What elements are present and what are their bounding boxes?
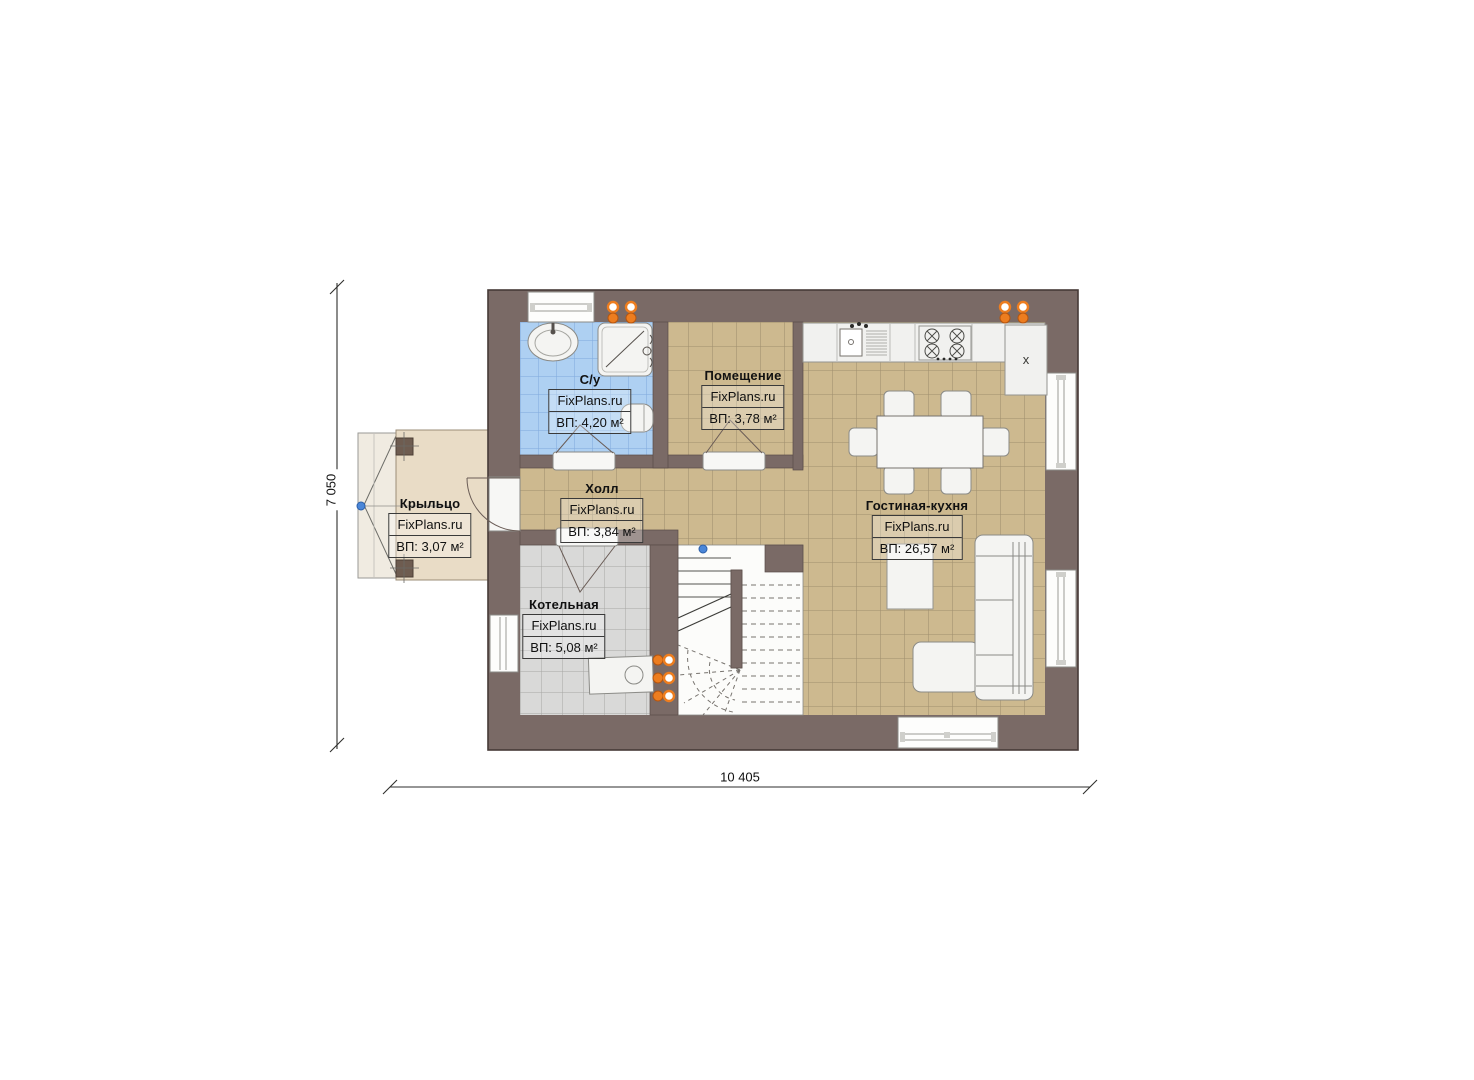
room-area: ВП: 3,07 м² [389, 535, 470, 557]
chair [941, 391, 971, 419]
chair [849, 428, 878, 456]
room-brand: FixPlans.ru [523, 615, 604, 636]
room-brand: FixPlans.ru [702, 386, 783, 407]
sink [528, 323, 578, 361]
window-boiler [490, 615, 518, 672]
dimension-height: 7 050 [324, 470, 339, 511]
room-brand: FixPlans.ru [561, 499, 642, 520]
room-brand: FixPlans.ru [549, 390, 630, 411]
chair [884, 391, 914, 419]
dining-table [877, 416, 983, 468]
room-name: Гостиная-кухня [866, 498, 968, 513]
reference-dot [357, 502, 365, 510]
chair [980, 428, 1009, 456]
room-area: ВП: 5,08 м² [523, 636, 604, 658]
chair [884, 466, 914, 494]
room-label-storage: Помещение FixPlans.ru ВП: 3,78 м² [701, 368, 784, 430]
shower [598, 323, 652, 376]
window-right-lower [1046, 570, 1076, 667]
room-label-porch: Крыльцо FixPlans.ru ВП: 3,07 м² [388, 496, 471, 558]
floor-plan-drawing: x [0, 0, 1474, 1080]
svg-text:x: x [1023, 352, 1030, 367]
radiator [653, 655, 674, 701]
room-label-hall: Холл FixPlans.ru ВП: 3,84 м² [560, 481, 643, 543]
room-label-living-kitchen: Гостиная-кухня FixPlans.ru ВП: 26,57 м² [866, 498, 968, 560]
reference-dot [699, 545, 707, 553]
room-label-boiler: Котельная FixPlans.ru ВП: 5,08 м² [522, 597, 605, 659]
room-brand: FixPlans.ru [389, 514, 470, 535]
room-name: Помещение [701, 368, 784, 383]
room-name: Холл [560, 481, 643, 496]
room-name: С/у [548, 372, 631, 387]
room-name: Крыльцо [388, 496, 471, 511]
room-name: Котельная [522, 597, 605, 612]
chair [941, 466, 971, 494]
fridge: x [1005, 325, 1047, 395]
room-brand: FixPlans.ru [873, 516, 962, 537]
room-area: ВП: 3,78 м² [702, 407, 783, 429]
room-area: ВП: 26,57 м² [873, 537, 962, 559]
window-bottom [898, 717, 998, 748]
window-top [528, 292, 594, 322]
dimension-width: 10 405 [716, 770, 764, 785]
window-right-upper [1046, 373, 1076, 470]
room-area: ВП: 4,20 м² [549, 411, 630, 433]
room-area: ВП: 3,84 м² [561, 520, 642, 542]
floor-plan-page: x [0, 0, 1474, 1080]
room-label-bathroom: С/у FixPlans.ru ВП: 4,20 м² [548, 372, 631, 434]
boiler-unit [588, 656, 653, 694]
